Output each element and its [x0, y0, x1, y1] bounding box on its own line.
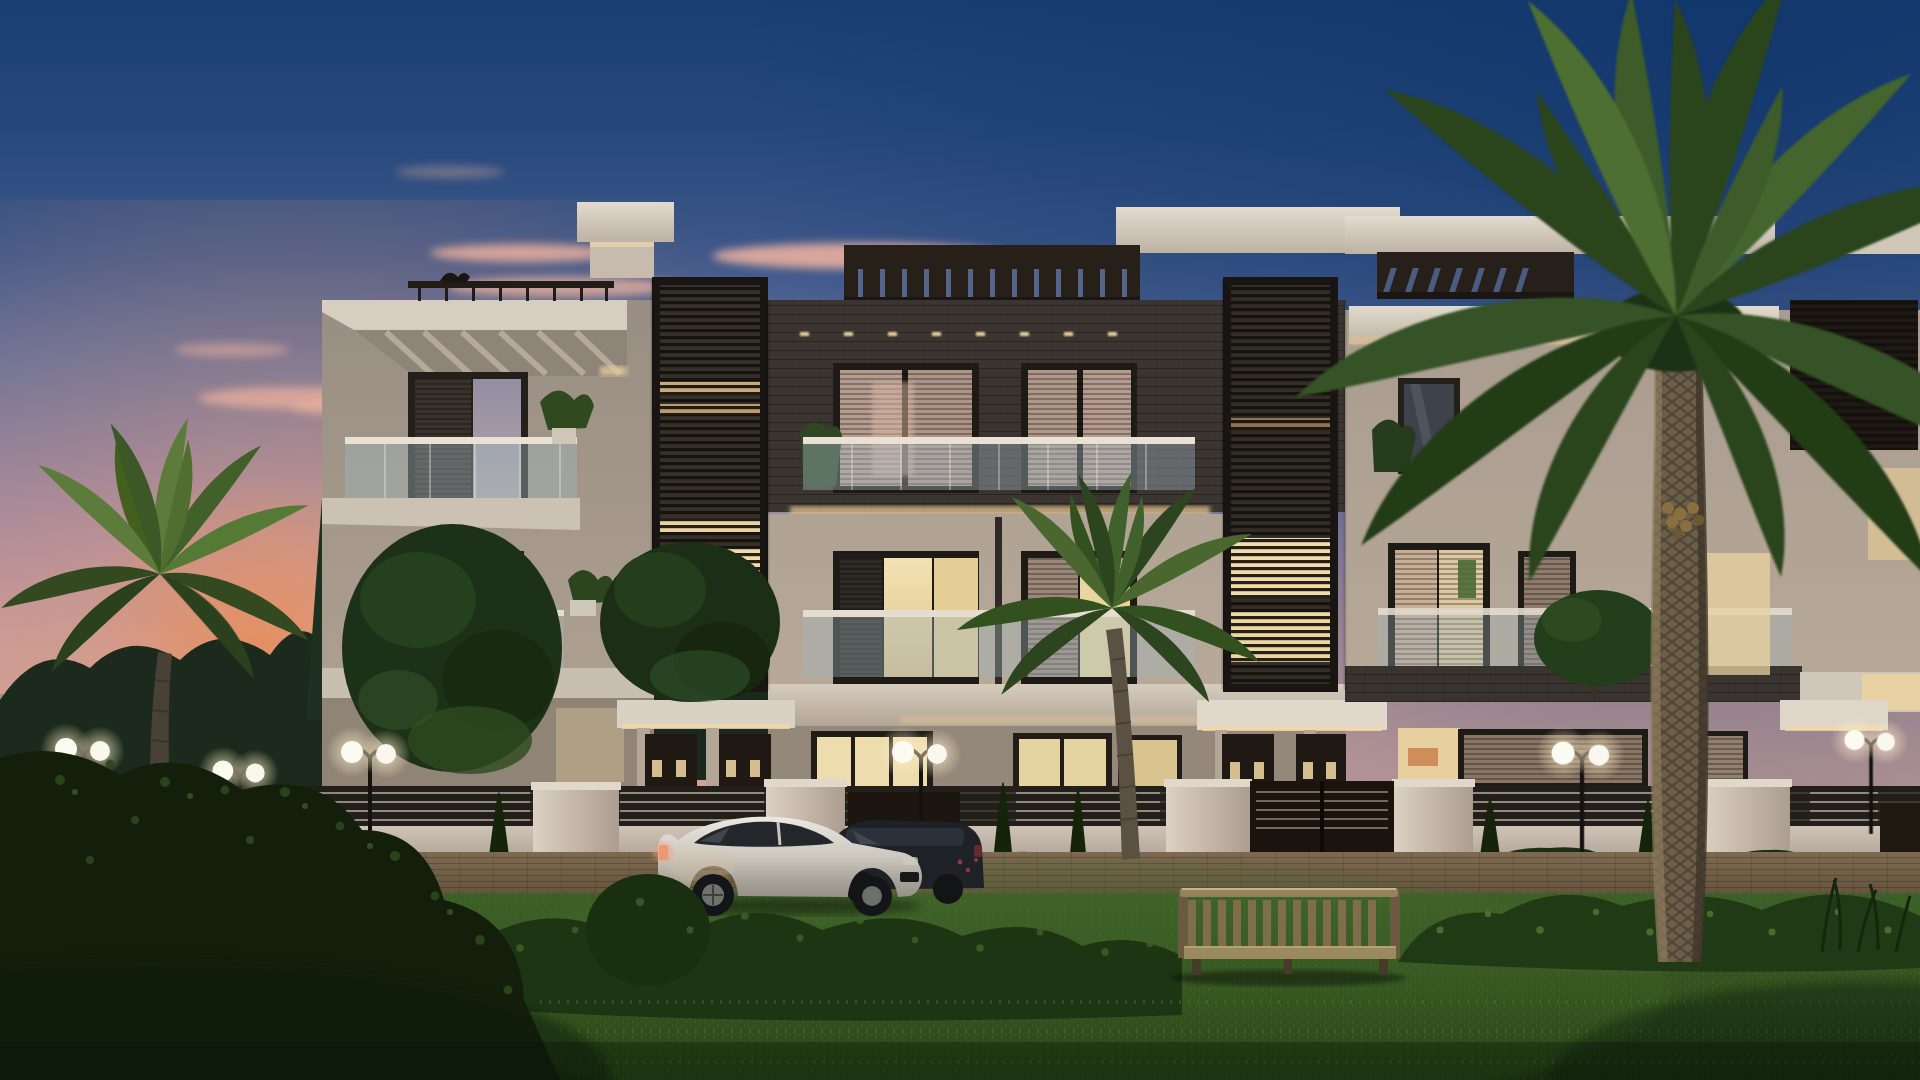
taillight-glow	[653, 842, 673, 862]
cloud	[174, 343, 290, 357]
rendered-photo	[0, 0, 1920, 1080]
scene-canvas	[0, 0, 1920, 1080]
round-tree-2	[600, 542, 780, 702]
cloud	[395, 166, 505, 178]
rooftop-pergola	[844, 245, 1140, 305]
bottom-fade	[0, 1042, 1920, 1080]
ground-window	[556, 708, 624, 782]
rooftop-pergola	[1377, 252, 1574, 299]
balcony-plant	[540, 390, 594, 430]
roof-slab	[322, 300, 627, 330]
louver-tower-2	[1223, 277, 1338, 692]
